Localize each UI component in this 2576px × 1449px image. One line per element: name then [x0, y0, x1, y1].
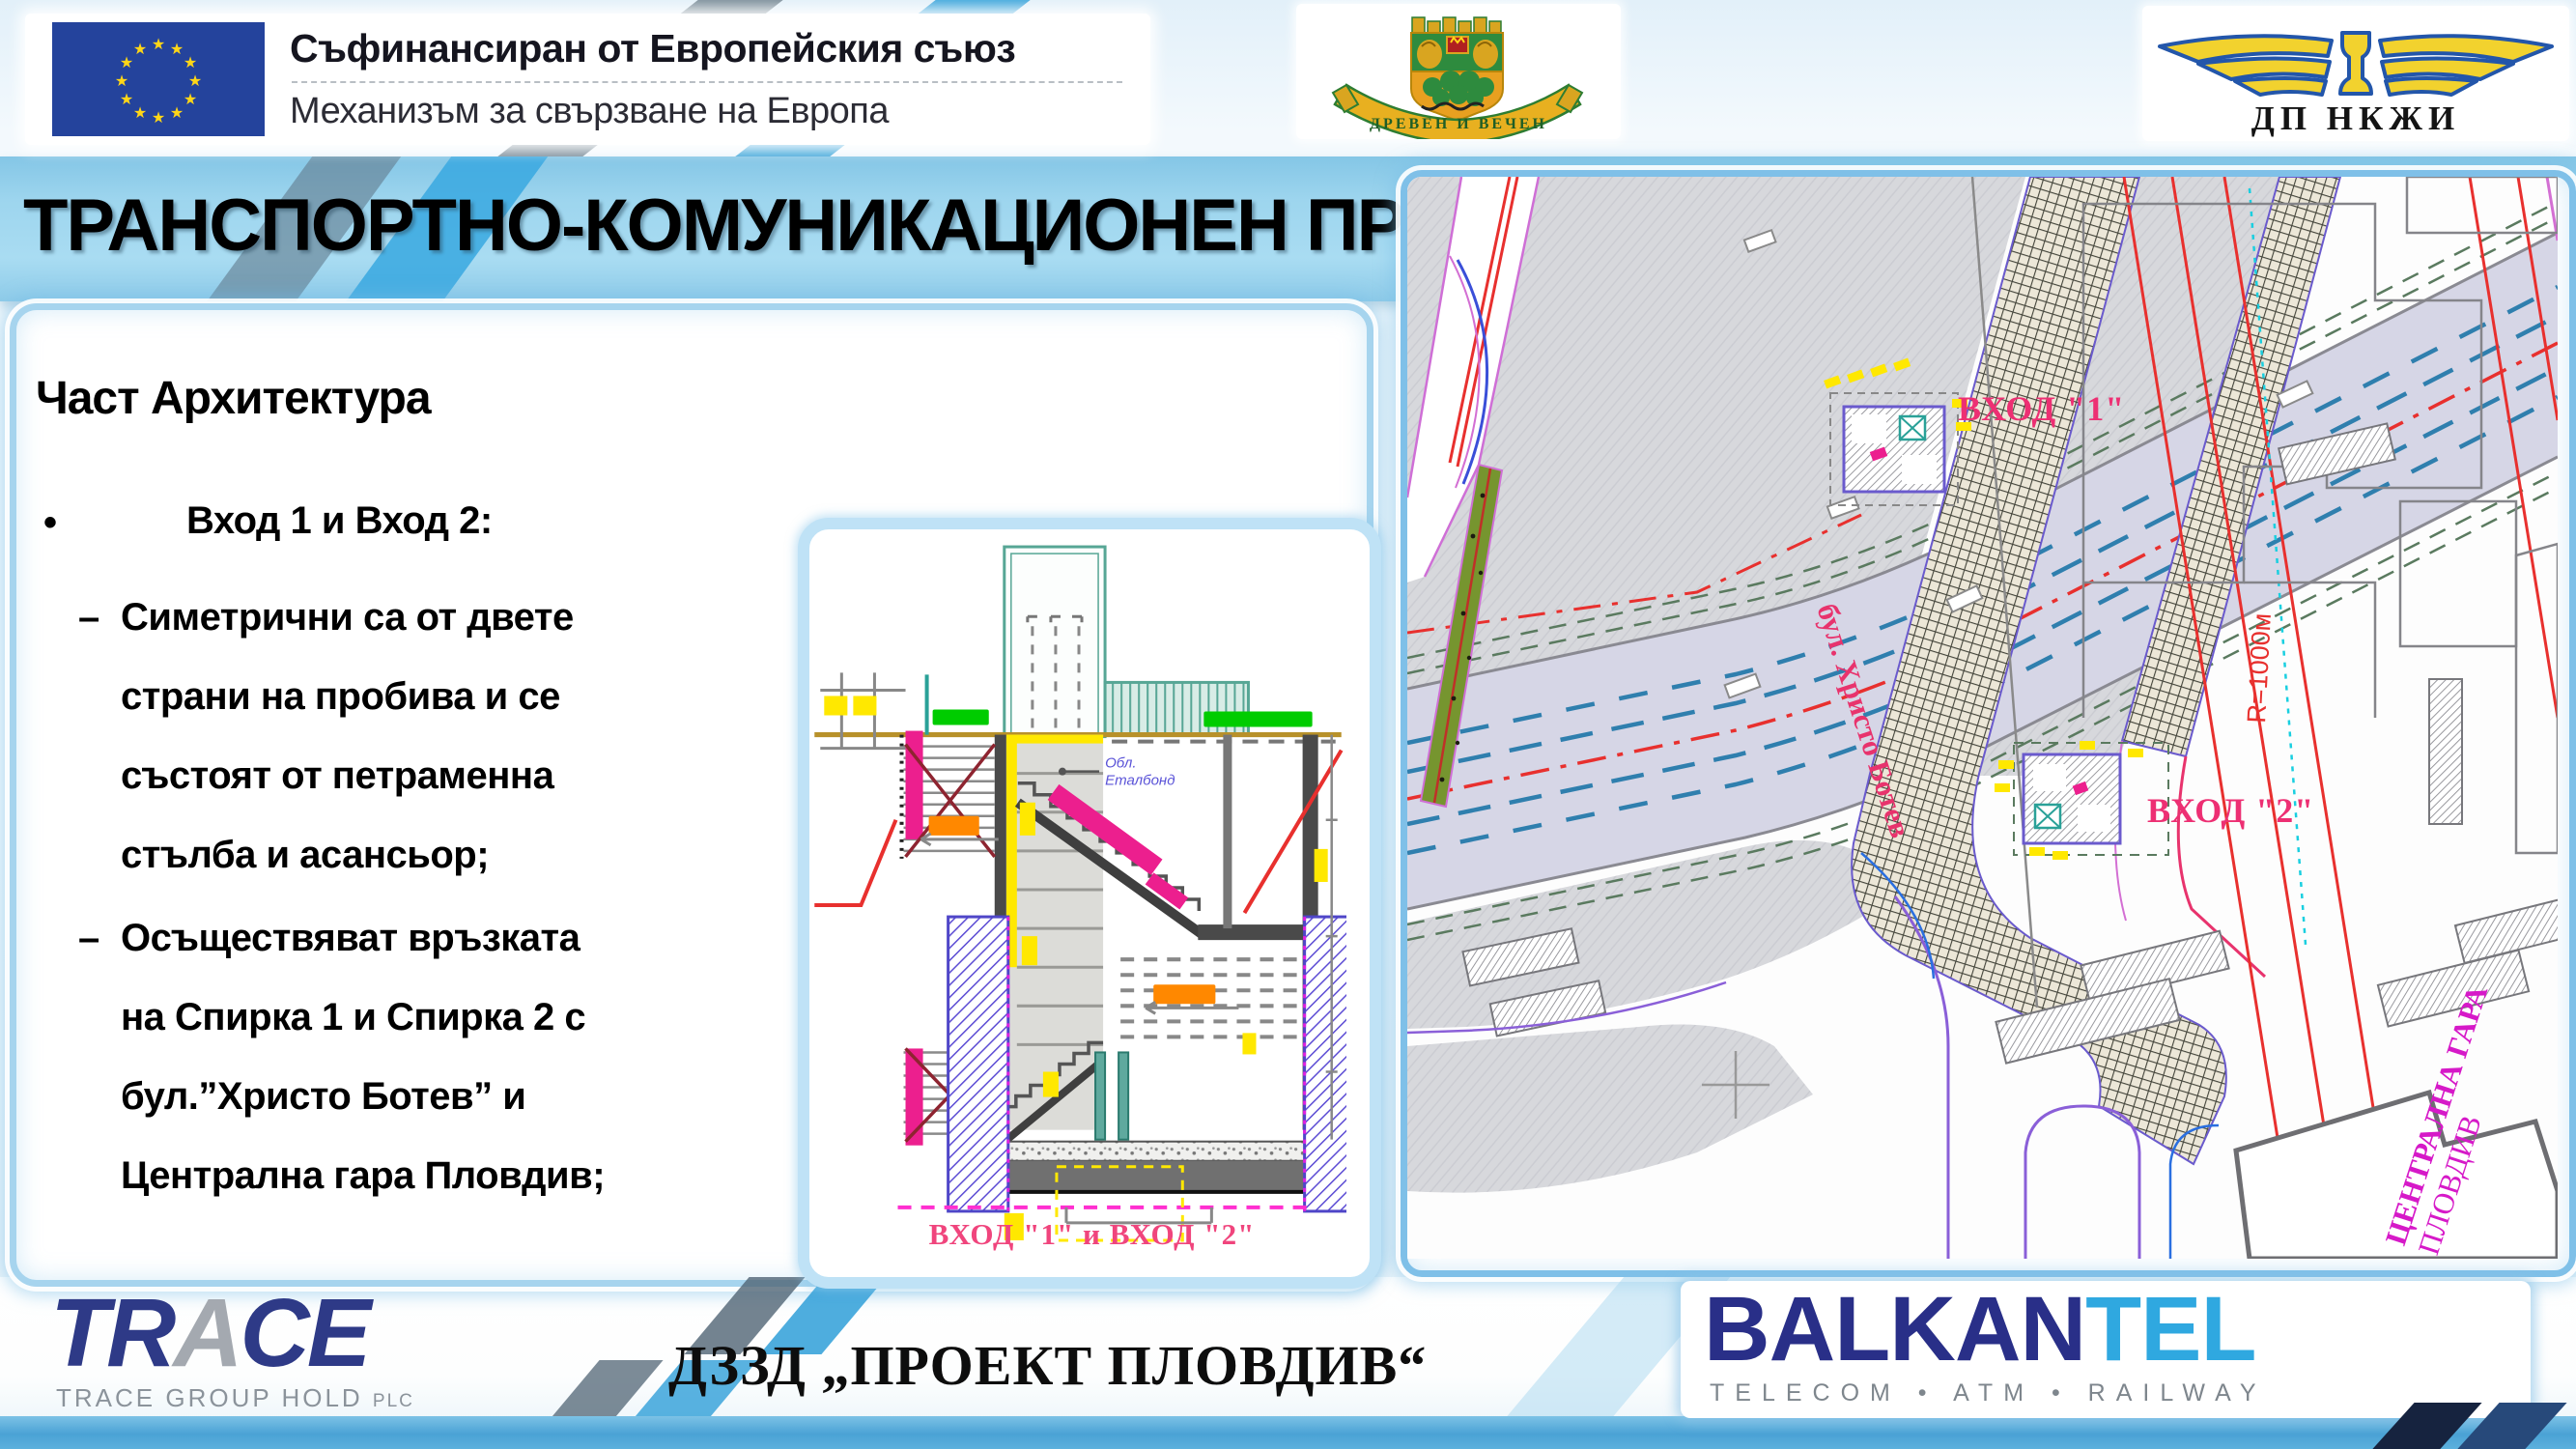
svg-text:★: ★: [152, 110, 165, 127]
entrance-1-label: ВХОД "1": [1958, 389, 2125, 428]
balkantel-logo-part1: BALKAN: [1704, 1278, 2085, 1380]
eu-funding-line1: Съфинансиран от Европейския съюз: [290, 26, 1150, 71]
trace-logo-part2: CE: [241, 1279, 369, 1387]
eu-funding-block: ★★★ ★★★ ★★★ ★★★ Съфинансиран от Европейс…: [25, 14, 1150, 145]
eu-funding-line2: Механизъм за свързване на Европа: [290, 91, 1150, 132]
dash-marker-2: –: [78, 917, 99, 960]
balkantel-logo: BALKANTEL TELECOM • ATM • RAILWAY: [1681, 1281, 2531, 1418]
sub-bullet-2-line-2: на Спирка 1 и Спирка 2 с: [121, 996, 585, 1039]
entrance-2-label: ВХОД "2": [2147, 791, 2314, 830]
svg-text:★: ★: [133, 42, 147, 58]
railway-logo: ДП НКЖИ: [2142, 6, 2569, 141]
sub-bullet-2-line-1: Осъществяват връзката: [121, 917, 580, 960]
sub-bullet-2-line-4: Централна гара Пловдив;: [121, 1154, 605, 1198]
sub-bullet-1-line-4: стълба и асансьор;: [121, 834, 489, 877]
consortium-name: ДЗЗД „ПРОЕКТ ПЛОВДИВ“: [668, 1333, 1427, 1398]
trace-logo-plc: PLC: [373, 1391, 414, 1411]
cross-section-drawing: Обл. Еталбонд ВХОД "1" и ВХОД "2": [798, 518, 1381, 1289]
bullet-marker: •: [43, 501, 57, 545]
section-caption: ВХОД "1" и ВХОД "2": [929, 1217, 1256, 1251]
svg-text:★: ★: [184, 92, 197, 108]
balkantel-logo-subtitle: TELECOM • ATM • RAILWAY: [1710, 1379, 2267, 1407]
slide-title: ТРАНСПОРТНО-КОМУНИКАЦИОНЕН ПРОБИВ: [23, 184, 1611, 268]
svg-text:★: ★: [170, 105, 184, 122]
trace-logo-subtitle: TRACE GROUP HOLD: [56, 1383, 363, 1412]
eu-divider: [292, 81, 1122, 83]
svg-text:★: ★: [115, 73, 128, 90]
winged-wheel-icon: [2160, 33, 2552, 95]
bullet-text: Вход 1 и Вход 2:: [186, 499, 493, 543]
section-heading: Част Архитектура: [36, 372, 431, 425]
slide: ★★★ ★★★ ★★★ ★★★ Съфинансиран от Европейс…: [0, 0, 2576, 1449]
plovdiv-motto: ДРЕВЕН И ВЕЧЕН: [1370, 116, 1547, 132]
trace-logo-part1: TR: [50, 1279, 173, 1387]
svg-text:★: ★: [184, 55, 197, 71]
sub-bullet-2-line-3: бул.”Христо Ботев” и: [121, 1075, 525, 1119]
svg-text:★: ★: [152, 37, 165, 53]
svg-text:★: ★: [120, 92, 133, 108]
svg-text:★: ★: [188, 73, 202, 90]
section-structure: [814, 547, 1346, 1240]
sub-bullet-1-line-1: Симетрични са от двете: [121, 596, 574, 639]
sub-bullet-1-line-3: състоят от петраменна: [121, 754, 553, 798]
trace-logo-letter-a: A: [173, 1279, 240, 1387]
cladding-note-line1: Обл.: [1105, 755, 1136, 772]
curve-radius-label: R=1000м: [2242, 612, 2277, 724]
cladding-note-line2: Еталбонд: [1105, 773, 1175, 789]
balkantel-logo-part2: TEL: [2085, 1278, 2255, 1380]
svg-text:★: ★: [170, 42, 184, 58]
dash-marker-1: –: [78, 596, 99, 639]
eu-flag-icon: ★★★ ★★★ ★★★ ★★★: [52, 22, 265, 136]
railway-logo-label: ДП НКЖИ: [2251, 99, 2461, 137]
svg-text:★: ★: [133, 105, 147, 122]
sub-bullet-1-line-2: страни на пробива и се: [121, 675, 560, 719]
svg-text:★: ★: [120, 55, 133, 71]
site-plan-panel: ВХОД "1" ВХОД "2" R=1000м бул. Христо Бо…: [1401, 170, 2576, 1277]
trace-logo: TRACE TRACE GROUP HOLD PLC: [50, 1285, 414, 1413]
bottom-blue-band: [0, 1416, 2576, 1449]
plovdiv-emblem: ДРЕВЕН И ВЕЧЕН: [1296, 4, 1621, 139]
